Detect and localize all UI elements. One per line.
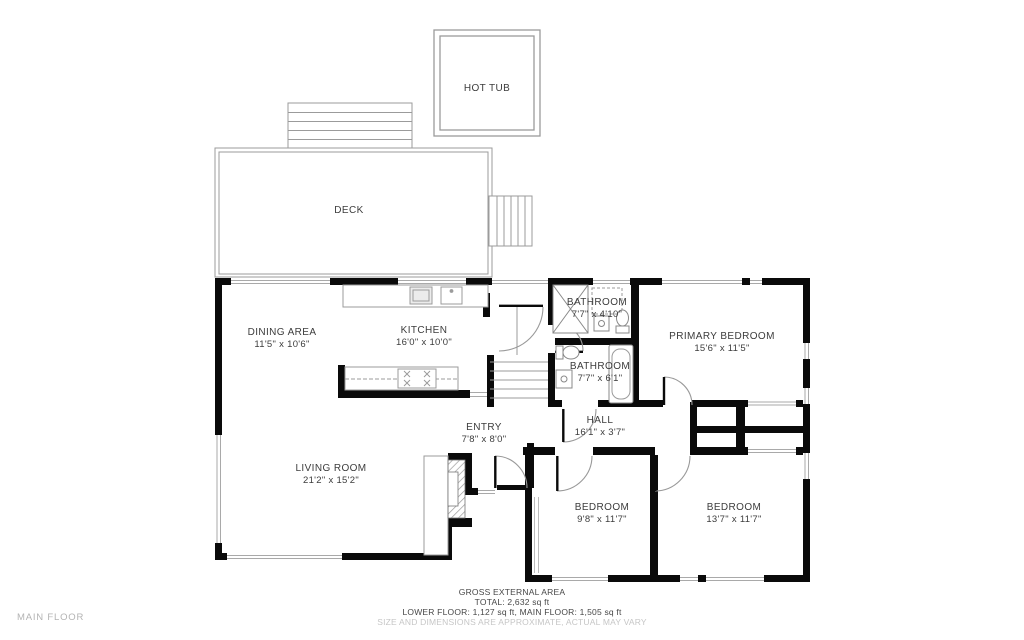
floorplan-canvas: HOT TUB DECK DINING AREA 11'5" x 10'6" K… <box>0 0 1024 640</box>
room-label-kitchen: KITCHEN 16'0" x 10'0" <box>396 325 452 349</box>
room-label-dining-area: DINING AREA 11'5" x 10'6" <box>248 327 317 351</box>
door-arc-bedroom-left <box>557 456 592 491</box>
door-arc-bedroom-right <box>655 456 690 491</box>
deck-stairs-side <box>489 196 532 246</box>
room-label-hot-tub: HOT TUB <box>464 83 510 95</box>
room-label-living-room: LIVING ROOM 21'2" x 15'2" <box>295 463 366 487</box>
door-arc-primary-bedroom <box>664 377 692 405</box>
toilet-icon <box>556 346 579 359</box>
deck-stairs-top <box>288 103 412 148</box>
total-area: TOTAL: 2,632 sq ft <box>0 597 1024 607</box>
area-summary: GROSS EXTERNAL AREA TOTAL: 2,632 sq ft L… <box>0 587 1024 627</box>
floor-areas: LOWER FLOOR: 1,127 sq ft, MAIN FLOOR: 1,… <box>0 607 1024 617</box>
floor-name-label: MAIN FLOOR <box>17 612 84 623</box>
kitchen-island <box>345 367 458 390</box>
gross-area-title: GROSS EXTERNAL AREA <box>0 587 1024 597</box>
room-label-hall: HALL 16'1" x 3'7" <box>575 415 625 439</box>
kitchen-counter <box>343 285 488 307</box>
disclaimer: SIZE AND DIMENSIONS ARE APPROXIMATE, ACT… <box>0 617 1024 627</box>
room-label-entry: ENTRY 7'8" x 8'0" <box>462 422 507 446</box>
door-arc-stair-top <box>499 307 543 351</box>
stove-icon <box>398 369 436 388</box>
room-label-deck: DECK <box>334 205 363 217</box>
floorplan-drawing <box>0 0 1024 640</box>
room-label-bathroom-upper: BATHROOM 7'7" x 4'10" <box>567 297 627 321</box>
walls-layer <box>215 278 810 582</box>
room-label-bedroom-right: BEDROOM 13'7" x 11'7" <box>706 502 761 526</box>
room-label-primary-bedroom: PRIMARY BEDROOM 15'6" x 11'5" <box>669 331 775 355</box>
fireplace-icon <box>424 456 465 555</box>
door-arc-front-door <box>495 456 527 488</box>
room-label-bathroom-lower: BATHROOM 7'7" x 6'1" <box>570 361 630 385</box>
interior-stairs <box>490 307 548 398</box>
room-label-bedroom-left: BEDROOM 9'8" x 11'7" <box>575 502 629 526</box>
